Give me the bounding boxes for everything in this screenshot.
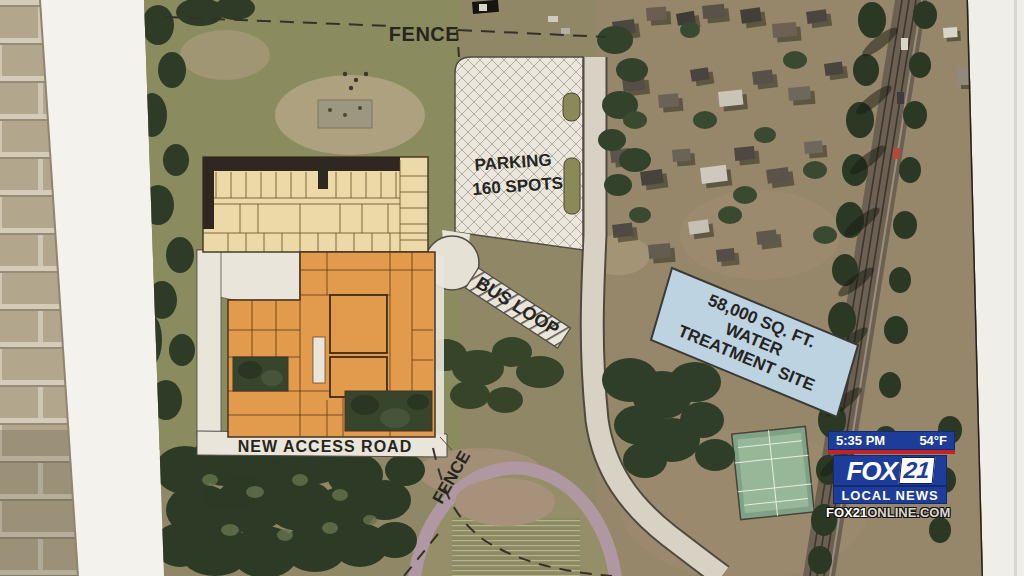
tennis-courts (732, 426, 815, 519)
website-url-prefix: FOX21 (826, 505, 867, 520)
fox-21-badge: 21 (899, 457, 935, 484)
website-url-suffix: ONLINE.COM (867, 505, 950, 520)
existing-building (203, 157, 428, 252)
tv-news-frame: 58,000 SQ. FT. WATER TREATMENT SITE FENC… (0, 0, 1024, 576)
fox21-logo: FOX 21 (833, 455, 947, 486)
fox-wordmark: FOX (846, 458, 896, 484)
temperature-display: 54°F (919, 433, 947, 448)
fence-top-label: FENCE (389, 23, 459, 45)
red-divider (828, 450, 955, 454)
local-news-bar: LOCAL NEWS (833, 486, 947, 504)
website-url: FOX21ONLINE.COM (826, 505, 962, 520)
news-overlay: 5:35 PM 54°F FOX 21 LOCAL NEWS FOX21ONLI… (826, 431, 962, 520)
time-display: 5:35 PM (836, 433, 885, 448)
time-temp-bar: 5:35 PM 54°F (828, 431, 955, 450)
access-road-label: NEW ACCESS ROAD (238, 438, 412, 455)
